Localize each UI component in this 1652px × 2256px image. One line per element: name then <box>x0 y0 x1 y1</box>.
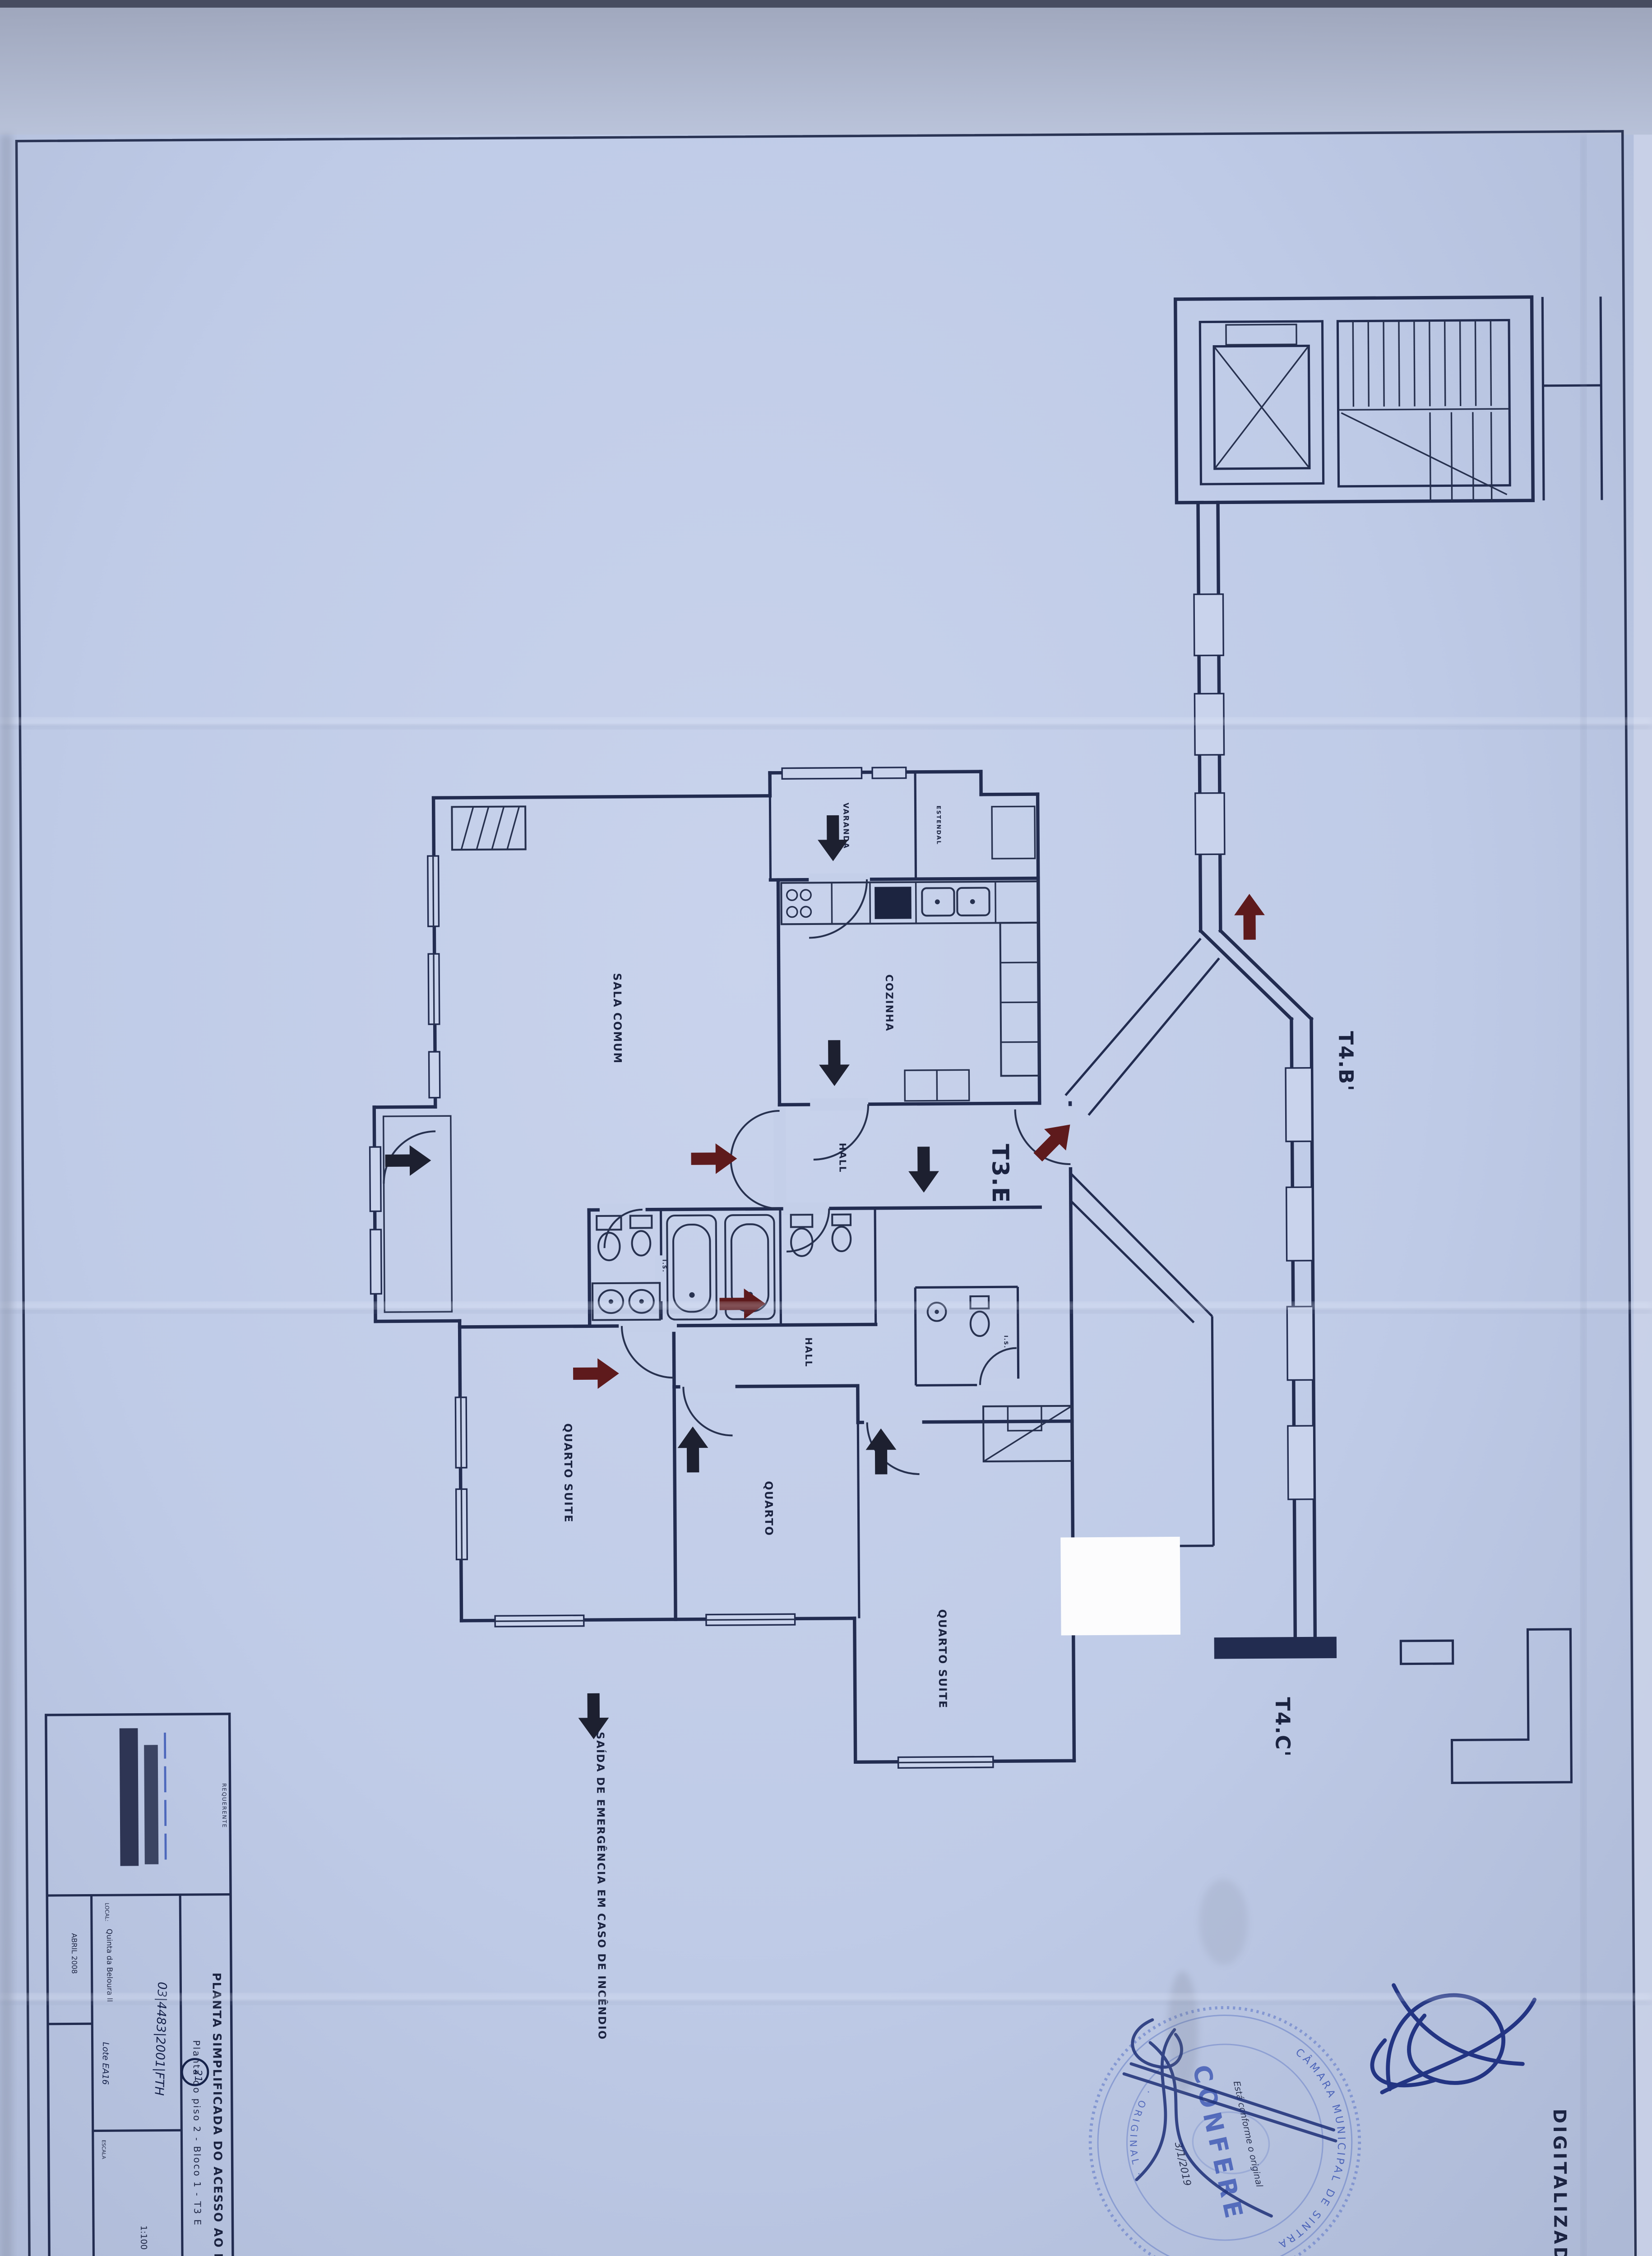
room-label-kitchen: COZINHA <box>883 975 895 1032</box>
room-label-bedroom: QUARTO <box>762 1481 775 1536</box>
room-label-drying: ESTENDAL <box>935 805 942 845</box>
digitalizado-watermark: DIGITALIZADO <box>1549 2109 1570 2256</box>
scale-label: ESCALA <box>101 2140 106 2159</box>
room-label-bath-suite: I.S. <box>1003 1336 1009 1349</box>
requerente-label: REQUERENTE <box>221 1783 228 1828</box>
scale-value: 1:100 <box>139 2225 148 2250</box>
wall-block <box>1214 1637 1337 1659</box>
scan-canvas: SALA COMUM COZINHA VARANDA ESTENDAL HALL… <box>0 0 1652 2256</box>
svg-text:21: 21 <box>192 2070 204 2082</box>
local-label: LOCAL: <box>104 1903 110 1921</box>
scanned-floor-plan-document: SALA COMUM COZINHA VARANDA ESTENDAL HALL… <box>0 0 1652 2256</box>
white-redaction-patch <box>1060 1537 1180 1636</box>
room-label-bath-main: I.S. <box>662 1259 668 1273</box>
room-label-suite-south: QUARTO SUITE <box>936 1609 949 1709</box>
local-value: Quinta da Beloura II <box>105 1929 114 2002</box>
unit-label-t4c: T4.C' <box>1271 1697 1294 1757</box>
room-label-hall-upper: HALL <box>837 1143 848 1173</box>
room-label-living: SALA COMUM <box>611 973 624 1064</box>
unit-label-t4b: T4.B' <box>1334 1031 1357 1092</box>
room-label-hall-lower: HALL <box>803 1337 814 1368</box>
room-label-suite-west: QUARTO SUITE <box>561 1424 574 1523</box>
paper-sheet <box>0 8 1652 2256</box>
local-handwritten: Lote EA16 <box>100 2042 110 2085</box>
drawing-subtitle: Planta do piso 2 - Bloco 1 - T3 E <box>191 2040 203 2227</box>
stove-icon <box>875 887 912 919</box>
date-value: ABRIL 2008 <box>70 1933 79 1974</box>
drawing-title: PLANTA SIMPLIFICADA DO ACESSO AO FOGO <box>210 1973 225 2256</box>
unit-label-t3e: T3.E <box>987 1144 1014 1204</box>
